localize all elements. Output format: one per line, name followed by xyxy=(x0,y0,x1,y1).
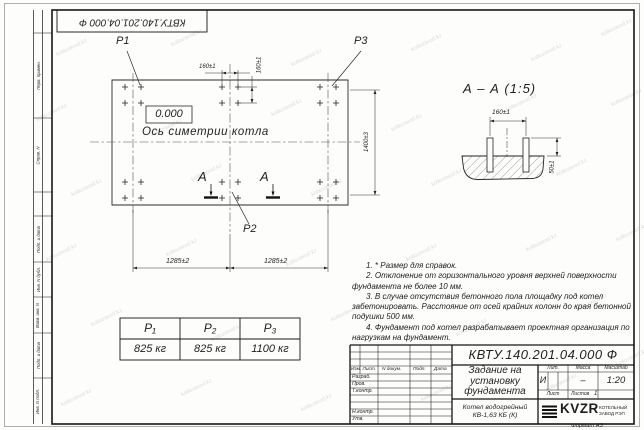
col-n-dokum: N докум. xyxy=(382,367,401,372)
boiler-symmetry-axis-label: Ось симетрии котла xyxy=(142,126,269,138)
margin-label-podp-data-2: Подп. и дата xyxy=(33,333,43,378)
section-dim-50: 50±1 xyxy=(546,156,559,177)
dim-160-horizontal: 160±1 xyxy=(199,64,216,70)
margin-label-vzam-inv: Взам. инв. N xyxy=(33,297,43,333)
sheets-value: 1 xyxy=(594,391,597,397)
level-mark: 0.000 xyxy=(146,106,192,123)
load-table-header-p2: P₂ xyxy=(180,318,240,339)
title-block-doc-number: КВТУ.140.201.04.000 Ф xyxy=(452,345,634,365)
load-table-value-p1: 825 кг xyxy=(120,339,180,360)
top-stamp-doc-number: КВТУ.140.201.04.000 Ф xyxy=(79,16,186,27)
scale-label: Масштаб xyxy=(598,365,634,372)
margin-label-podp-data-1: Подп. и дата xyxy=(33,216,43,262)
row-tkontr: Т.контр. xyxy=(352,389,373,394)
load-table-header-p3: P₃ xyxy=(240,318,300,339)
margin-label-sprav-n: Справ. N xyxy=(33,118,43,192)
load-point-label-p3: P3 xyxy=(354,36,367,48)
col-podp: Подп. xyxy=(413,367,426,372)
kvzr-logo-icon xyxy=(542,404,557,418)
org-name: КОТЕЛЬНЫЙ ЗАВОД РЭП xyxy=(599,405,627,416)
note-3: 3. В случае отсутствия бетонного пола пл… xyxy=(352,292,635,323)
row-razrab: Разраб. xyxy=(352,375,371,380)
notes-block: 1. * Размер для справок. 2. Отклонение о… xyxy=(352,261,635,343)
sheets-label: Листов xyxy=(571,392,589,397)
load-table-value-p3: 1100 кг xyxy=(240,339,300,360)
mass-value: – xyxy=(568,372,598,390)
dim-1400: 1400±3 xyxy=(360,125,374,159)
load-table-value-p2: 825 кг xyxy=(180,339,240,360)
col-data: Дата xyxy=(434,367,447,372)
load-table-header-p1: P₁ xyxy=(120,318,180,339)
load-point-label-p1: P1 xyxy=(116,36,129,48)
section-view-title: А – А (1:5) xyxy=(463,82,536,96)
section-letter-left: А xyxy=(198,170,207,184)
load-point-label-p2: P2 xyxy=(243,224,256,236)
dim-160-vertical: 160±1 xyxy=(252,52,266,78)
mass-label: Масса xyxy=(568,365,598,372)
note-1: 1. * Размер для справок. xyxy=(352,261,635,271)
lit-label: Лит. xyxy=(538,365,568,372)
dim-1285-left: 1285±2 xyxy=(166,258,189,265)
col-izm-list: Изм. Лист xyxy=(351,367,375,372)
note-4: 4. Фундамент под котел разрабатывает про… xyxy=(352,323,635,344)
drawing-sheet: kotlozavod.kzkotlozavod.kzkotlozavod.kzk… xyxy=(0,0,644,430)
margin-label-inv-dubl: Инв. N дубл. xyxy=(33,262,43,297)
format-label: Формат А3 xyxy=(540,423,634,430)
title-block-product: Котел водогрейный КВ-1,63 КБ (К) xyxy=(452,399,538,424)
top-stamp-cell: КВТУ.140.201.04.000 Ф xyxy=(57,10,207,32)
lit-value: И xyxy=(538,372,548,390)
kvzr-logo-text: KVZR xyxy=(560,402,599,416)
sheet-label: Лист xyxy=(538,390,568,399)
margin-label-perv-primen: Перв. примен. xyxy=(33,33,43,118)
margin-label-inv-podl: Инв. N подл. xyxy=(33,378,43,424)
title-block-title: Задание на установку фундамента xyxy=(452,365,538,399)
row-prov: Пров. xyxy=(352,382,366,387)
note-2: 2. Отклонение от горизонтального уровня … xyxy=(352,271,635,292)
dim-1285-right: 1285±2 xyxy=(264,258,287,265)
section-dim-160: 160±1 xyxy=(492,110,510,117)
scale-value: 1:20 xyxy=(598,372,634,390)
row-utv: Утв. xyxy=(352,417,364,422)
row-nkontr: Н.контр. xyxy=(352,410,374,415)
section-letter-right: А xyxy=(260,170,269,184)
